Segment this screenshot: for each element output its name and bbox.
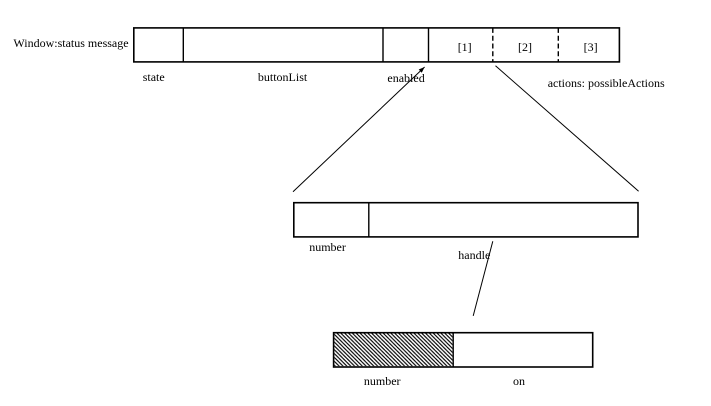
svg-text:handle: handle <box>458 248 490 262</box>
svg-text:buttonList: buttonList <box>258 70 308 84</box>
svg-text:number: number <box>309 240 346 254</box>
svg-text:enabled: enabled <box>387 71 424 85</box>
svg-text:state: state <box>143 70 165 84</box>
svg-text:Window:status message: Window:status message <box>13 36 128 50</box>
svg-text:[2]: [2] <box>518 40 532 54</box>
svg-text:number: number <box>364 374 401 388</box>
svg-text:[1]: [1] <box>458 40 472 54</box>
svg-text:[3]: [3] <box>584 40 598 54</box>
svg-text:on: on <box>513 374 525 388</box>
svg-text:actions: possibleActions: actions: possibleActions <box>548 76 665 90</box>
